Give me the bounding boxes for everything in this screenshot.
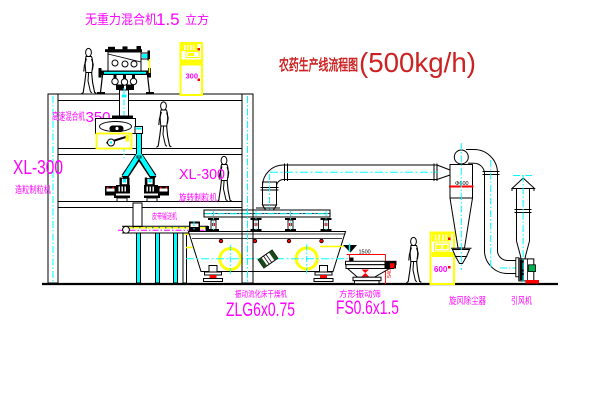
svg-text:FS0.6x1.5: FS0.6x1.5 — [336, 298, 399, 319]
svg-text:造粒制粒机: 造粒制粒机 — [15, 184, 51, 196]
svg-text:(500kg/h): (500kg/h) — [359, 47, 476, 78]
svg-text:立方: 立方 — [185, 12, 209, 27]
svg-text:600: 600 — [434, 265, 448, 274]
svg-text:振动流化床干燥机: 振动流化床干燥机 — [235, 289, 287, 299]
svg-text:皮带输送机: 皮带输送机 — [152, 211, 177, 221]
svg-text:XL-300: XL-300 — [179, 166, 225, 183]
svg-text:引风机: 引风机 — [511, 295, 532, 307]
svg-text:旋风除尘器: 旋风除尘器 — [449, 295, 486, 307]
svg-text:1.5: 1.5 — [156, 10, 180, 29]
svg-text:高速混合机: 高速混合机 — [52, 110, 85, 123]
svg-text:无重力混合机: 无重力混合机 — [85, 12, 157, 27]
svg-text:XL-300: XL-300 — [13, 157, 63, 179]
svg-text:1500: 1500 — [359, 250, 371, 256]
svg-text:300: 300 — [186, 72, 199, 81]
svg-text:ZLG6x0.75: ZLG6x0.75 — [226, 300, 295, 321]
svg-text:农药生产线流程图: 农药生产线流程图 — [278, 56, 358, 74]
svg-text:540: 540 — [387, 269, 393, 278]
svg-text:旋转制粒机: 旋转制粒机 — [179, 192, 217, 204]
